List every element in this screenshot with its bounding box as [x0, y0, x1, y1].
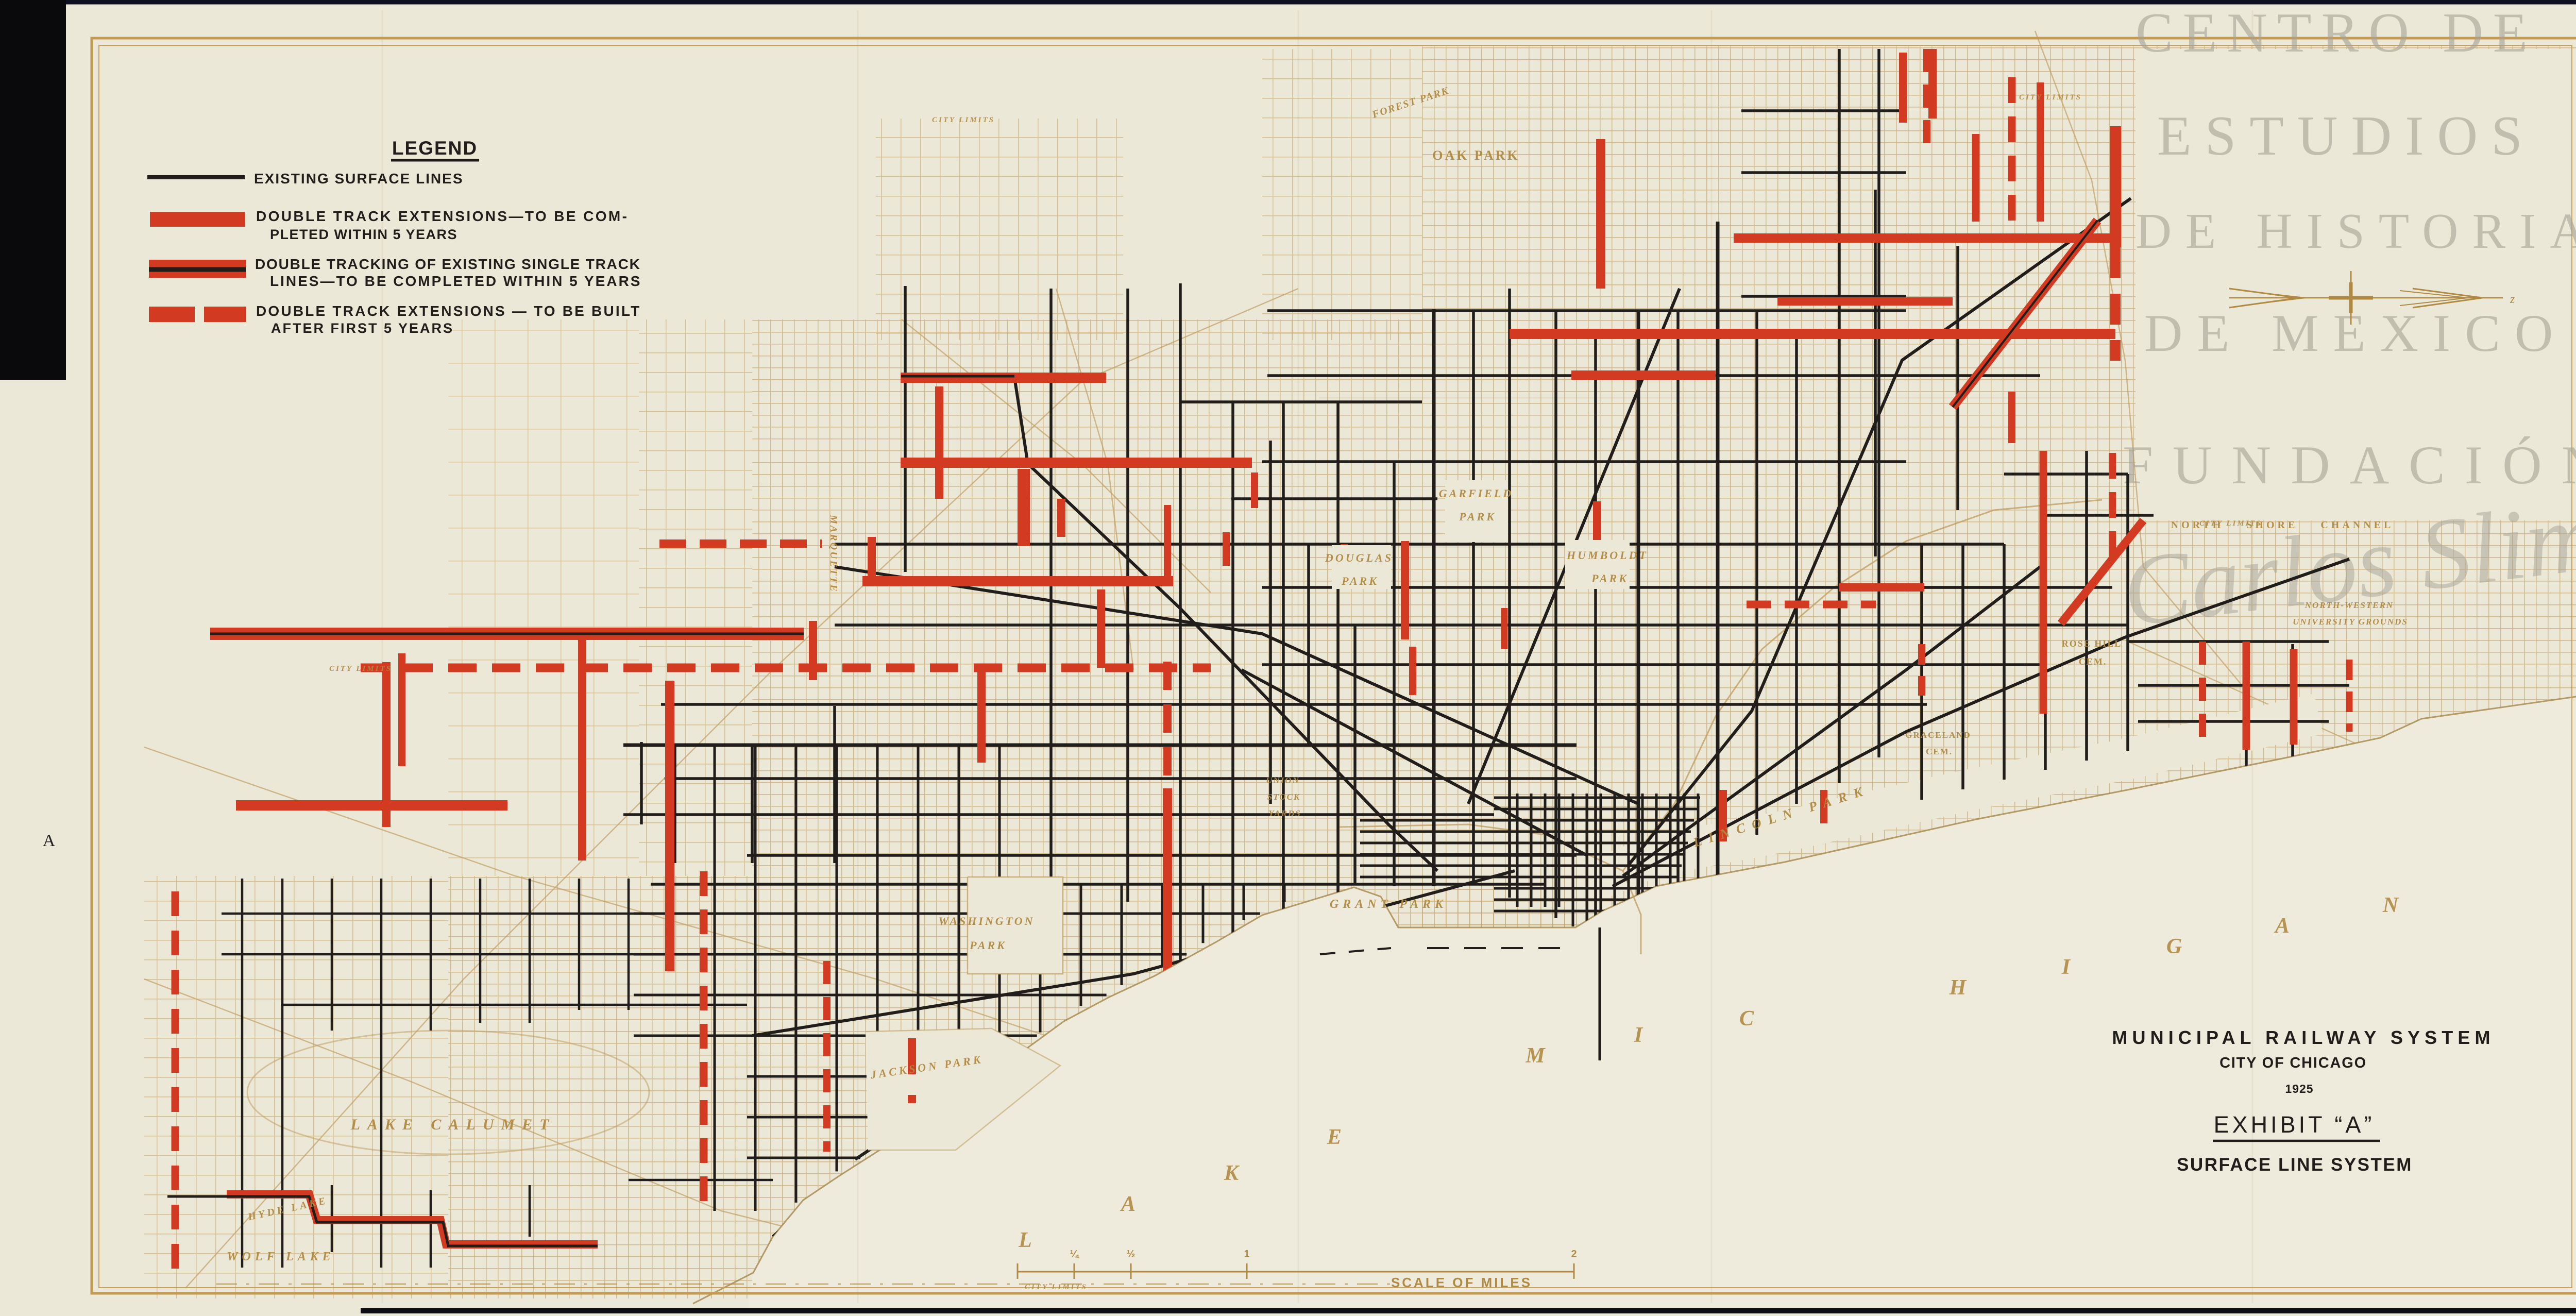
svg-text:GRACELAND: GRACELAND — [1905, 730, 1971, 740]
svg-text:CEM.: CEM. — [1926, 747, 1953, 756]
svg-text:ROSE HILL: ROSE HILL — [2062, 638, 2122, 649]
svg-text:DOUGLAS: DOUGLAS — [1325, 551, 1393, 564]
svg-text:CITY LIMITS: CITY LIMITS — [1025, 1283, 1088, 1291]
svg-text:L: L — [1018, 1228, 1032, 1252]
svg-text:C: C — [1739, 1007, 1754, 1031]
svg-text:z: z — [2510, 293, 2515, 306]
svg-text:UNION: UNION — [1266, 775, 1300, 785]
svg-text:I: I — [1634, 1023, 1643, 1047]
svg-text:1925: 1925 — [2285, 1082, 2313, 1095]
svg-text:MUNICIPAL RAILWAY SYSTEM: MUNICIPAL RAILWAY SYSTEM — [2112, 1027, 2495, 1048]
svg-text:GRANT PARK: GRANT PARK — [1330, 898, 1447, 911]
svg-text:WOLF LAKE: WOLF LAKE — [227, 1250, 335, 1263]
svg-text:LAKE CALUMET: LAKE CALUMET — [350, 1116, 556, 1133]
svg-text:SURFACE LINE SYSTEM: SURFACE LINE SYSTEM — [2177, 1155, 2413, 1175]
svg-text:K: K — [1224, 1161, 1240, 1185]
svg-text:I: I — [2061, 955, 2071, 979]
svg-text:PARK: PARK — [1341, 575, 1379, 587]
svg-text:OAK PARK: OAK PARK — [1432, 148, 1519, 163]
svg-text:1: 1 — [1244, 1248, 1249, 1260]
svg-text:DOUBLE TRACKING OF EXISTING SI: DOUBLE TRACKING OF EXISTING SINGLE TRACK — [255, 256, 641, 272]
svg-text:DE MEXICO: DE MEXICO — [2144, 304, 2567, 363]
svg-text:E: E — [1327, 1125, 1342, 1149]
svg-text:CITY LIMITS: CITY LIMITS — [932, 116, 995, 124]
svg-text:EXHIBIT “A”: EXHIBIT “A” — [2214, 1111, 2375, 1138]
svg-text:PARK: PARK — [1591, 572, 1629, 585]
svg-text:DE HISTORIA: DE HISTORIA — [2136, 204, 2576, 259]
svg-text:CENTRO DE: CENTRO DE — [2136, 2, 2537, 64]
svg-text:SCALE OF MILES: SCALE OF MILES — [1391, 1275, 1532, 1290]
svg-text:M: M — [1525, 1044, 1546, 1068]
svg-text:NORTH-WESTERN: NORTH-WESTERN — [2304, 600, 2394, 610]
svg-text:MARQUETTE: MARQUETTE — [828, 514, 839, 593]
svg-text:WASHINGTON: WASHINGTON — [938, 915, 1035, 927]
svg-text:CITY LIMITS: CITY LIMITS — [329, 665, 392, 673]
svg-text:LEGEND: LEGEND — [392, 138, 478, 159]
svg-text:H: H — [1949, 976, 1967, 1000]
svg-text:LINES—TO BE COMPLETED WITHIN 5: LINES—TO BE COMPLETED WITHIN 5 YEARS — [270, 273, 641, 289]
svg-text:GARFIELD: GARFIELD — [1439, 487, 1513, 500]
svg-text:YARDS: YARDS — [1268, 808, 1301, 818]
svg-text:CITY OF CHICAGO: CITY OF CHICAGO — [2219, 1055, 2367, 1071]
svg-text:PLETED WITHIN 5 YEARS: PLETED WITHIN 5 YEARS — [270, 227, 457, 242]
svg-text:CEM.: CEM. — [2079, 656, 2107, 667]
svg-text:DOUBLE TRACK EXTENSIONS — TO B: DOUBLE TRACK EXTENSIONS — TO BE BUILT — [256, 303, 641, 319]
svg-text:½: ½ — [1127, 1248, 1136, 1260]
svg-text:UNIVERSITY GROUNDS: UNIVERSITY GROUNDS — [2293, 617, 2408, 627]
svg-text:AFTER FIRST 5 YEARS: AFTER FIRST 5 YEARS — [271, 320, 454, 336]
svg-text:A: A — [2274, 914, 2290, 938]
svg-text:A: A — [1120, 1192, 1136, 1216]
svg-text:¼: ¼ — [1070, 1248, 1080, 1260]
svg-text:FUNDACIÓN: FUNDACIÓN — [2123, 435, 2576, 495]
svg-text:A: A — [43, 831, 56, 850]
svg-text:CITY LIMITS: CITY LIMITS — [2019, 93, 2082, 102]
svg-text:DOUBLE TRACK EXTENSIONS—TO BE: DOUBLE TRACK EXTENSIONS—TO BE COM- — [256, 208, 629, 224]
svg-text:N: N — [2382, 893, 2399, 917]
svg-text:2: 2 — [1571, 1248, 1577, 1260]
svg-text:ESTUDIOS: ESTUDIOS — [2157, 105, 2536, 167]
svg-text:HUMBOLDT: HUMBOLDT — [1566, 549, 1648, 562]
svg-text:STOCK: STOCK — [1267, 792, 1301, 802]
svg-text:EXISTING SURFACE LINES: EXISTING SURFACE LINES — [254, 171, 464, 187]
svg-text:G: G — [2166, 935, 2182, 958]
svg-text:PARK: PARK — [1459, 510, 1496, 523]
svg-text:CITY LIMITS: CITY LIMITS — [2199, 519, 2262, 528]
svg-text:PARK: PARK — [969, 939, 1007, 952]
